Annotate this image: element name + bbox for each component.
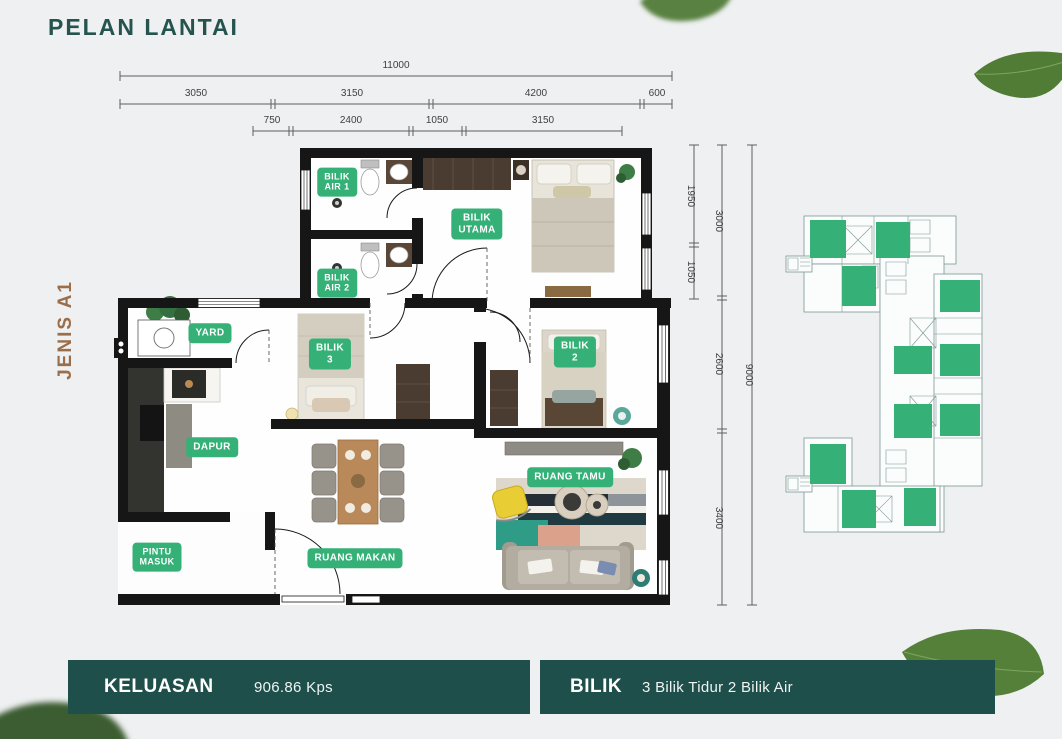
- dim-top-total: 11000: [382, 60, 410, 71]
- dim-3050: 3050: [185, 88, 208, 99]
- page-title: PELAN LANTAI: [48, 14, 239, 41]
- rooms-value: 3 Bilik Tidur 2 Bilik Air: [642, 679, 793, 696]
- room-label-bilik-3: BILIK3: [309, 339, 351, 370]
- page: PELAN LANTAI JENIS A1 11000 3050 3150 42…: [0, 0, 1062, 739]
- dim-3000: 3000: [713, 210, 724, 233]
- leaf-top-decoration: [636, 0, 740, 34]
- dim-2600: 2600: [713, 353, 724, 376]
- dimension-right: 1950 1050 3000 2600 3400 9000: [685, 145, 757, 605]
- dim-4200: 4200: [525, 88, 548, 99]
- key-plan-drawing: [782, 200, 1052, 536]
- dim-3150b: 3150: [532, 115, 555, 126]
- room-label-bilik-utama: BILIKUTAMA: [451, 209, 502, 240]
- dim-1050b: 1050: [685, 261, 696, 284]
- key-plan: [782, 200, 1052, 536]
- room-label-bilik-air-2: BILIKAIR 2: [317, 269, 357, 298]
- room-label-pintu-masuk: PINTUMASUK: [133, 543, 182, 572]
- room-label-ruang-makan: RUANG MAKAN: [307, 548, 402, 568]
- dim-1050a: 1050: [426, 115, 449, 126]
- floor-plan: 11000 3050 3150 4200 600 750 2400 1050 3…: [60, 55, 760, 615]
- dim-3400: 3400: [713, 507, 724, 530]
- dim-1950: 1950: [685, 185, 696, 208]
- area-label: KELUASAN: [104, 676, 254, 698]
- room-label-yard: YARD: [188, 323, 231, 343]
- room-label-bilik-air-1: BILIKAIR 1: [317, 168, 357, 197]
- dimension-top: 11000 3050 3150 4200 600 750 2400 1050 3…: [120, 60, 672, 136]
- room-label-bilik-2: BILIK2: [554, 337, 596, 368]
- dim-600: 600: [649, 88, 666, 99]
- room-label-dapur: DAPUR: [186, 437, 238, 457]
- dim-750: 750: [264, 115, 281, 126]
- area-info-bar: KELUASAN 906.86 Kps: [68, 660, 530, 714]
- rooms-info-bar: BILIK 3 Bilik Tidur 2 Bilik Air: [540, 660, 995, 714]
- dim-9000: 9000: [743, 364, 754, 387]
- leaf-top-right: [972, 36, 1062, 122]
- room-label-ruang-tamu: RUANG TAMU: [527, 467, 613, 487]
- dim-2400: 2400: [340, 115, 363, 126]
- area-value: 906.86 Kps: [254, 679, 333, 696]
- floor-plan-drawing: 11000 3050 3150 4200 600 750 2400 1050 3…: [60, 55, 760, 615]
- rooms-label: BILIK: [570, 676, 642, 698]
- dim-3150a: 3150: [341, 88, 364, 99]
